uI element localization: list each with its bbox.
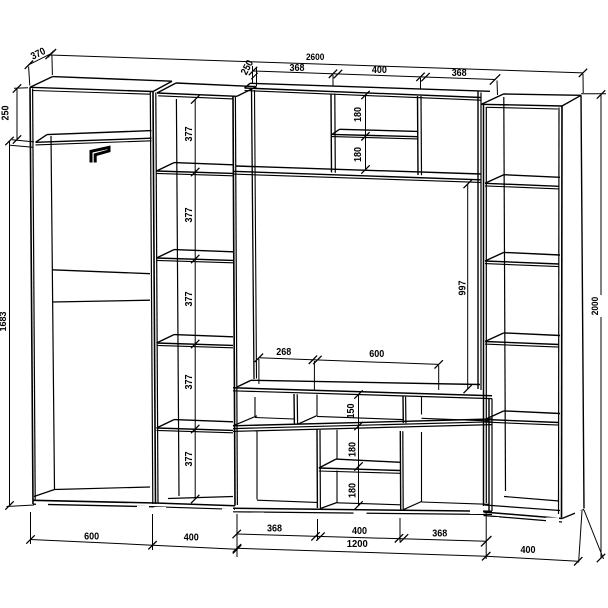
svg-text:1200: 1200 (347, 539, 368, 550)
svg-text:400: 400 (352, 526, 367, 537)
svg-text:180: 180 (347, 442, 358, 457)
svg-text:2000: 2000 (590, 297, 600, 316)
svg-text:368: 368 (290, 63, 305, 74)
svg-text:368: 368 (267, 523, 282, 534)
svg-text:268: 268 (276, 347, 291, 358)
svg-text:377: 377 (184, 126, 195, 141)
svg-text:150: 150 (346, 403, 357, 418)
svg-text:180: 180 (347, 483, 358, 498)
svg-text:368: 368 (432, 528, 447, 539)
svg-text:377: 377 (184, 374, 195, 389)
svg-text:400: 400 (372, 65, 387, 76)
svg-text:180: 180 (353, 107, 364, 122)
svg-text:377: 377 (184, 451, 195, 466)
svg-text:2600: 2600 (306, 52, 325, 62)
svg-text:180: 180 (353, 147, 364, 162)
svg-text:600: 600 (84, 531, 99, 542)
svg-text:377: 377 (184, 207, 195, 222)
svg-text:250: 250 (1, 105, 12, 120)
svg-text:1683: 1683 (0, 312, 8, 332)
svg-text:377: 377 (184, 291, 195, 306)
svg-text:400: 400 (521, 545, 536, 556)
svg-text:600: 600 (369, 349, 384, 360)
svg-text:997: 997 (457, 280, 468, 295)
svg-text:368: 368 (452, 68, 467, 79)
svg-text:400: 400 (184, 533, 199, 544)
